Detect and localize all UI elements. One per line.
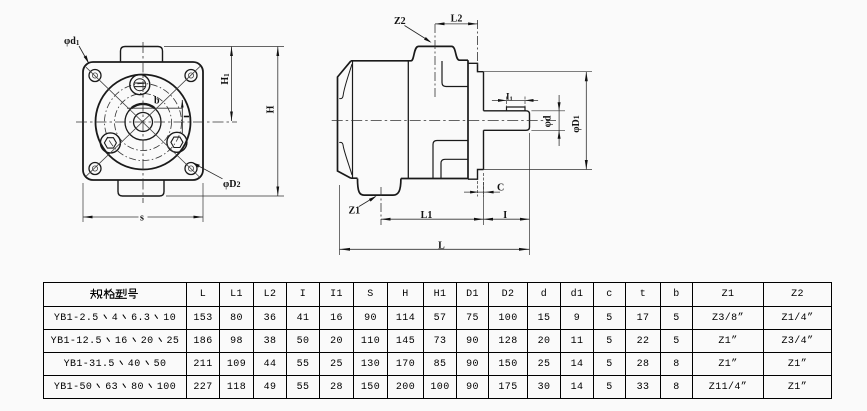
svg-text:H: H: [266, 105, 277, 113]
svg-text:I1: I1: [506, 92, 513, 103]
svg-text:L: L: [438, 241, 445, 252]
svg-text:φd: φd: [543, 115, 554, 127]
svg-text:L1: L1: [421, 210, 433, 221]
svg-text:φD1: φD1: [571, 115, 582, 132]
svg-text:H1: H1: [220, 73, 231, 85]
svg-text:C: C: [497, 182, 504, 193]
svg-text:L2: L2: [451, 14, 463, 25]
svg-text:Z2: Z2: [394, 16, 406, 27]
svg-text:b: b: [154, 96, 160, 107]
svg-text:φd1: φd1: [64, 36, 80, 47]
svg-text:Z1: Z1: [349, 206, 361, 217]
svg-text:φD2: φD2: [223, 179, 240, 190]
svg-text:I: I: [503, 210, 507, 221]
svg-text:s: s: [140, 213, 144, 224]
